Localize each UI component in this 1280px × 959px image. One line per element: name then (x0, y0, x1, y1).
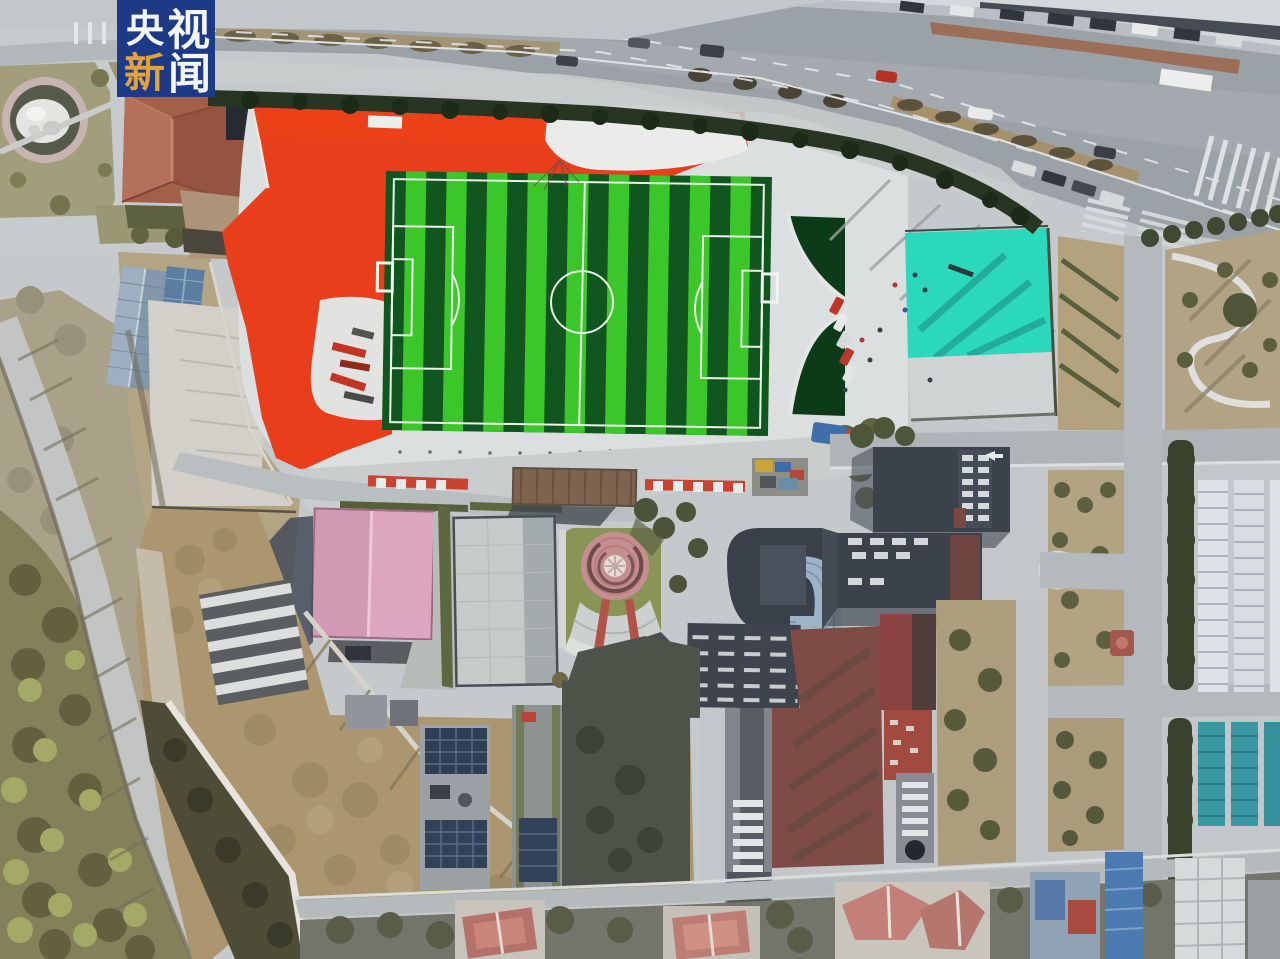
svg-text:闻: 闻 (168, 51, 211, 99)
svg-text:央: 央 (126, 9, 165, 51)
svg-text:视: 视 (167, 7, 210, 55)
svg-text:新: 新 (124, 50, 165, 96)
